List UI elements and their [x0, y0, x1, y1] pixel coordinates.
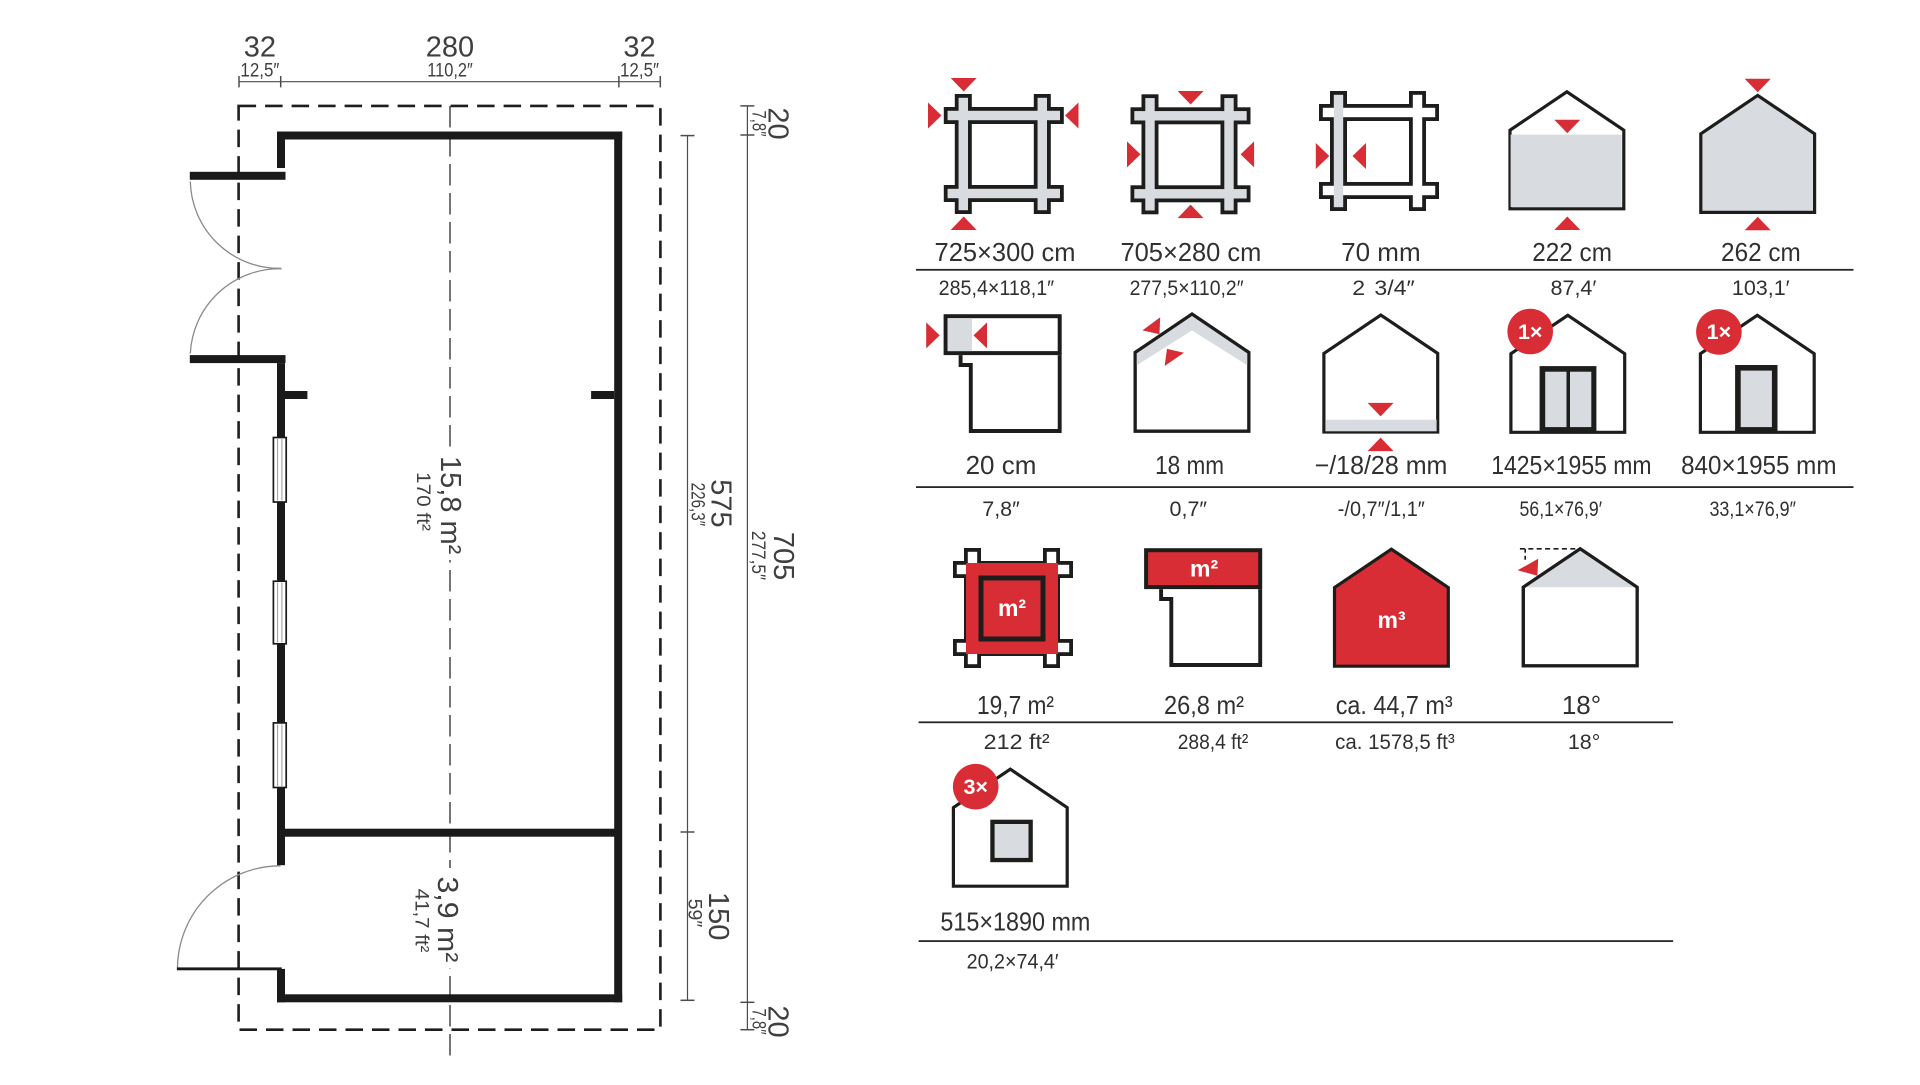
svg-text:212 ft²: 212 ft²	[984, 730, 1050, 754]
svg-text:ca. 1578,5 ft³: ca. 1578,5 ft³	[1335, 730, 1455, 754]
svg-text:2 3/4″: 2 3/4″	[1352, 276, 1415, 300]
svg-text:170 ft²: 170 ft²	[412, 472, 434, 532]
svg-text:705: 705	[767, 532, 799, 580]
svg-text:-/0,7″/1,1″: -/0,7″/1,1″	[1338, 497, 1425, 521]
svg-text:285,4×118,1″: 285,4×118,1″	[939, 276, 1055, 300]
svg-text:12,5″: 12,5″	[620, 60, 659, 82]
svg-text:3,9 m²: 3,9 m²	[431, 876, 463, 962]
svg-text:1×: 1×	[1518, 320, 1543, 344]
svg-text:288,4 ft²: 288,4 ft²	[1178, 730, 1249, 754]
svg-text:7,8″: 7,8″	[982, 497, 1020, 521]
svg-text:110,2″: 110,2″	[427, 60, 473, 82]
svg-text:277,5″: 277,5″	[747, 531, 769, 580]
svg-text:20,2×74,4′: 20,2×74,4′	[967, 950, 1059, 974]
svg-text:59″: 59″	[684, 899, 706, 928]
svg-text:m²: m²	[1190, 556, 1218, 582]
svg-text:277,5×110,2″: 277,5×110,2″	[1130, 276, 1244, 300]
svg-text:1425×1955 mm: 1425×1955 mm	[1491, 450, 1651, 480]
svg-text:20 cm: 20 cm	[966, 450, 1037, 480]
svg-text:226,3″: 226,3″	[686, 483, 708, 527]
svg-text:7,8″: 7,8″	[747, 1009, 769, 1035]
svg-text:56,1×76,9′: 56,1×76,9′	[1520, 497, 1603, 521]
svg-text:7,8″: 7,8″	[747, 111, 769, 137]
svg-text:3×: 3×	[963, 775, 988, 799]
svg-text:103,1′: 103,1′	[1732, 276, 1790, 300]
svg-text:0,7″: 0,7″	[1170, 497, 1208, 521]
svg-text:41,7 ft²: 41,7 ft²	[411, 889, 433, 953]
svg-text:515×1890 mm: 515×1890 mm	[940, 907, 1090, 937]
svg-text:m²: m²	[998, 595, 1026, 621]
svg-text:222 cm: 222 cm	[1532, 237, 1612, 267]
svg-text:19,7 m²: 19,7 m²	[977, 690, 1054, 720]
svg-text:87,4′: 87,4′	[1551, 276, 1597, 300]
svg-text:840×1955 mm: 840×1955 mm	[1681, 450, 1836, 480]
svg-text:262 cm: 262 cm	[1721, 237, 1801, 267]
svg-text:150: 150	[702, 892, 734, 940]
svg-text:12,5″: 12,5″	[240, 60, 279, 82]
svg-text:m³: m³	[1377, 607, 1405, 633]
svg-text:18°: 18°	[1568, 730, 1601, 754]
svg-text:15,8 m²: 15,8 m²	[434, 456, 466, 555]
svg-text:26,8 m²: 26,8 m²	[1164, 690, 1244, 720]
svg-text:18 mm: 18 mm	[1155, 450, 1224, 480]
svg-text:705×280 cm: 705×280 cm	[1121, 237, 1262, 267]
svg-text:18°: 18°	[1562, 690, 1601, 720]
svg-text:70 mm: 70 mm	[1341, 237, 1420, 267]
svg-text:ca. 44,7 m³: ca. 44,7 m³	[1336, 690, 1453, 720]
svg-text:1×: 1×	[1707, 320, 1732, 344]
svg-text:−/18/28 mm: −/18/28 mm	[1315, 450, 1448, 480]
svg-text:725×300 cm: 725×300 cm	[935, 237, 1076, 267]
svg-text:33,1×76,9″: 33,1×76,9″	[1709, 497, 1796, 521]
